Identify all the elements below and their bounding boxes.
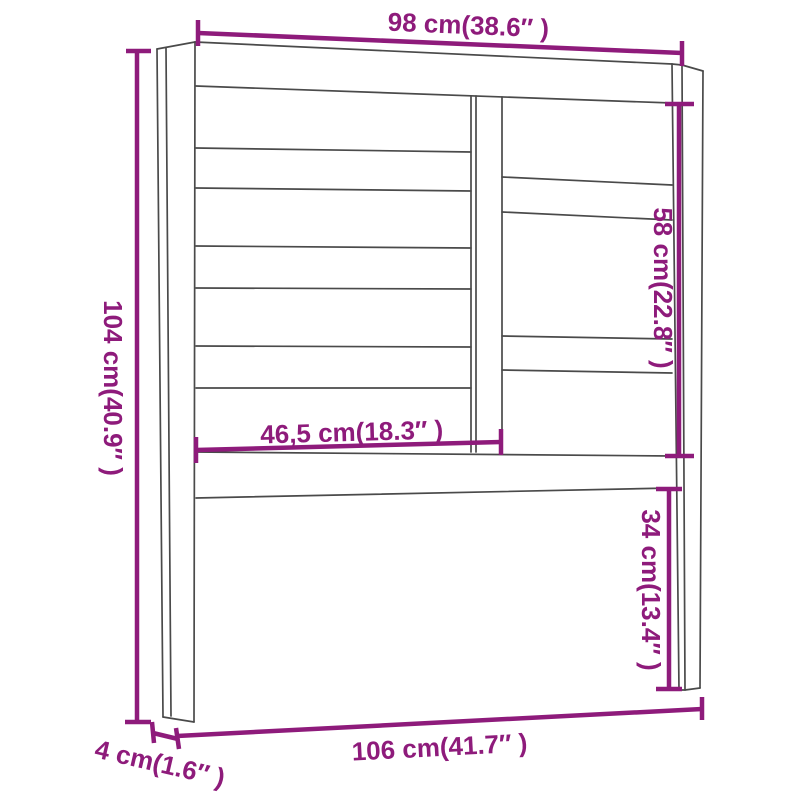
right-column-rails — [502, 177, 672, 373]
dimension-annotations: 98 cm(38.6″ ) 104 cm(40.9″ ) 58 cm(22.8″… — [92, 7, 702, 793]
headboard-dimension-diagram-page: 98 cm(38.6″ ) 104 cm(40.9″ ) 58 cm(22.8″… — [0, 0, 800, 800]
dim-middle-inner-width: 46,5 cm(18.3″ ) — [196, 414, 501, 463]
dim-bottom-width: 106 cm(41.7″ ) — [177, 697, 702, 767]
dim-top-width: 98 cm(38.6″ ) — [198, 7, 682, 66]
dim-right-inner-height: 58 cm(22.8″ ) — [648, 104, 694, 456]
dimension-tick — [176, 728, 179, 749]
dim-label-bottom-width: 106 cm(41.7″ ) — [351, 727, 528, 766]
dim-label-middle-inner-width: 46,5 cm(18.3″ ) — [260, 414, 444, 449]
dim-label-top-width: 98 cm(38.6″ ) — [387, 7, 549, 44]
dim-label-post-depth: 4 cm(1.6″ ) — [92, 734, 228, 793]
dimension-tick — [152, 722, 154, 743]
left-post — [157, 42, 195, 722]
bottom-rail — [196, 452, 672, 498]
dim-label-right-leg-height: 34 cm(13.4″ ) — [636, 509, 666, 670]
headboard-drawing — [157, 42, 703, 722]
headboard-dimension-diagram: 98 cm(38.6″ ) 104 cm(40.9″ ) 58 cm(22.8″… — [0, 0, 800, 800]
vertical-divider — [471, 96, 502, 453]
middle-slats — [196, 148, 471, 388]
dim-right-leg-height: 34 cm(13.4″ ) — [636, 489, 682, 689]
dim-left-height: 104 cm(40.9″ ) — [98, 51, 151, 722]
dimension-line — [153, 733, 178, 739]
dim-label-right-inner-height: 58 cm(22.8″ ) — [648, 207, 678, 368]
dim-label-left-height: 104 cm(40.9″ ) — [98, 300, 128, 476]
right-post — [672, 64, 703, 690]
